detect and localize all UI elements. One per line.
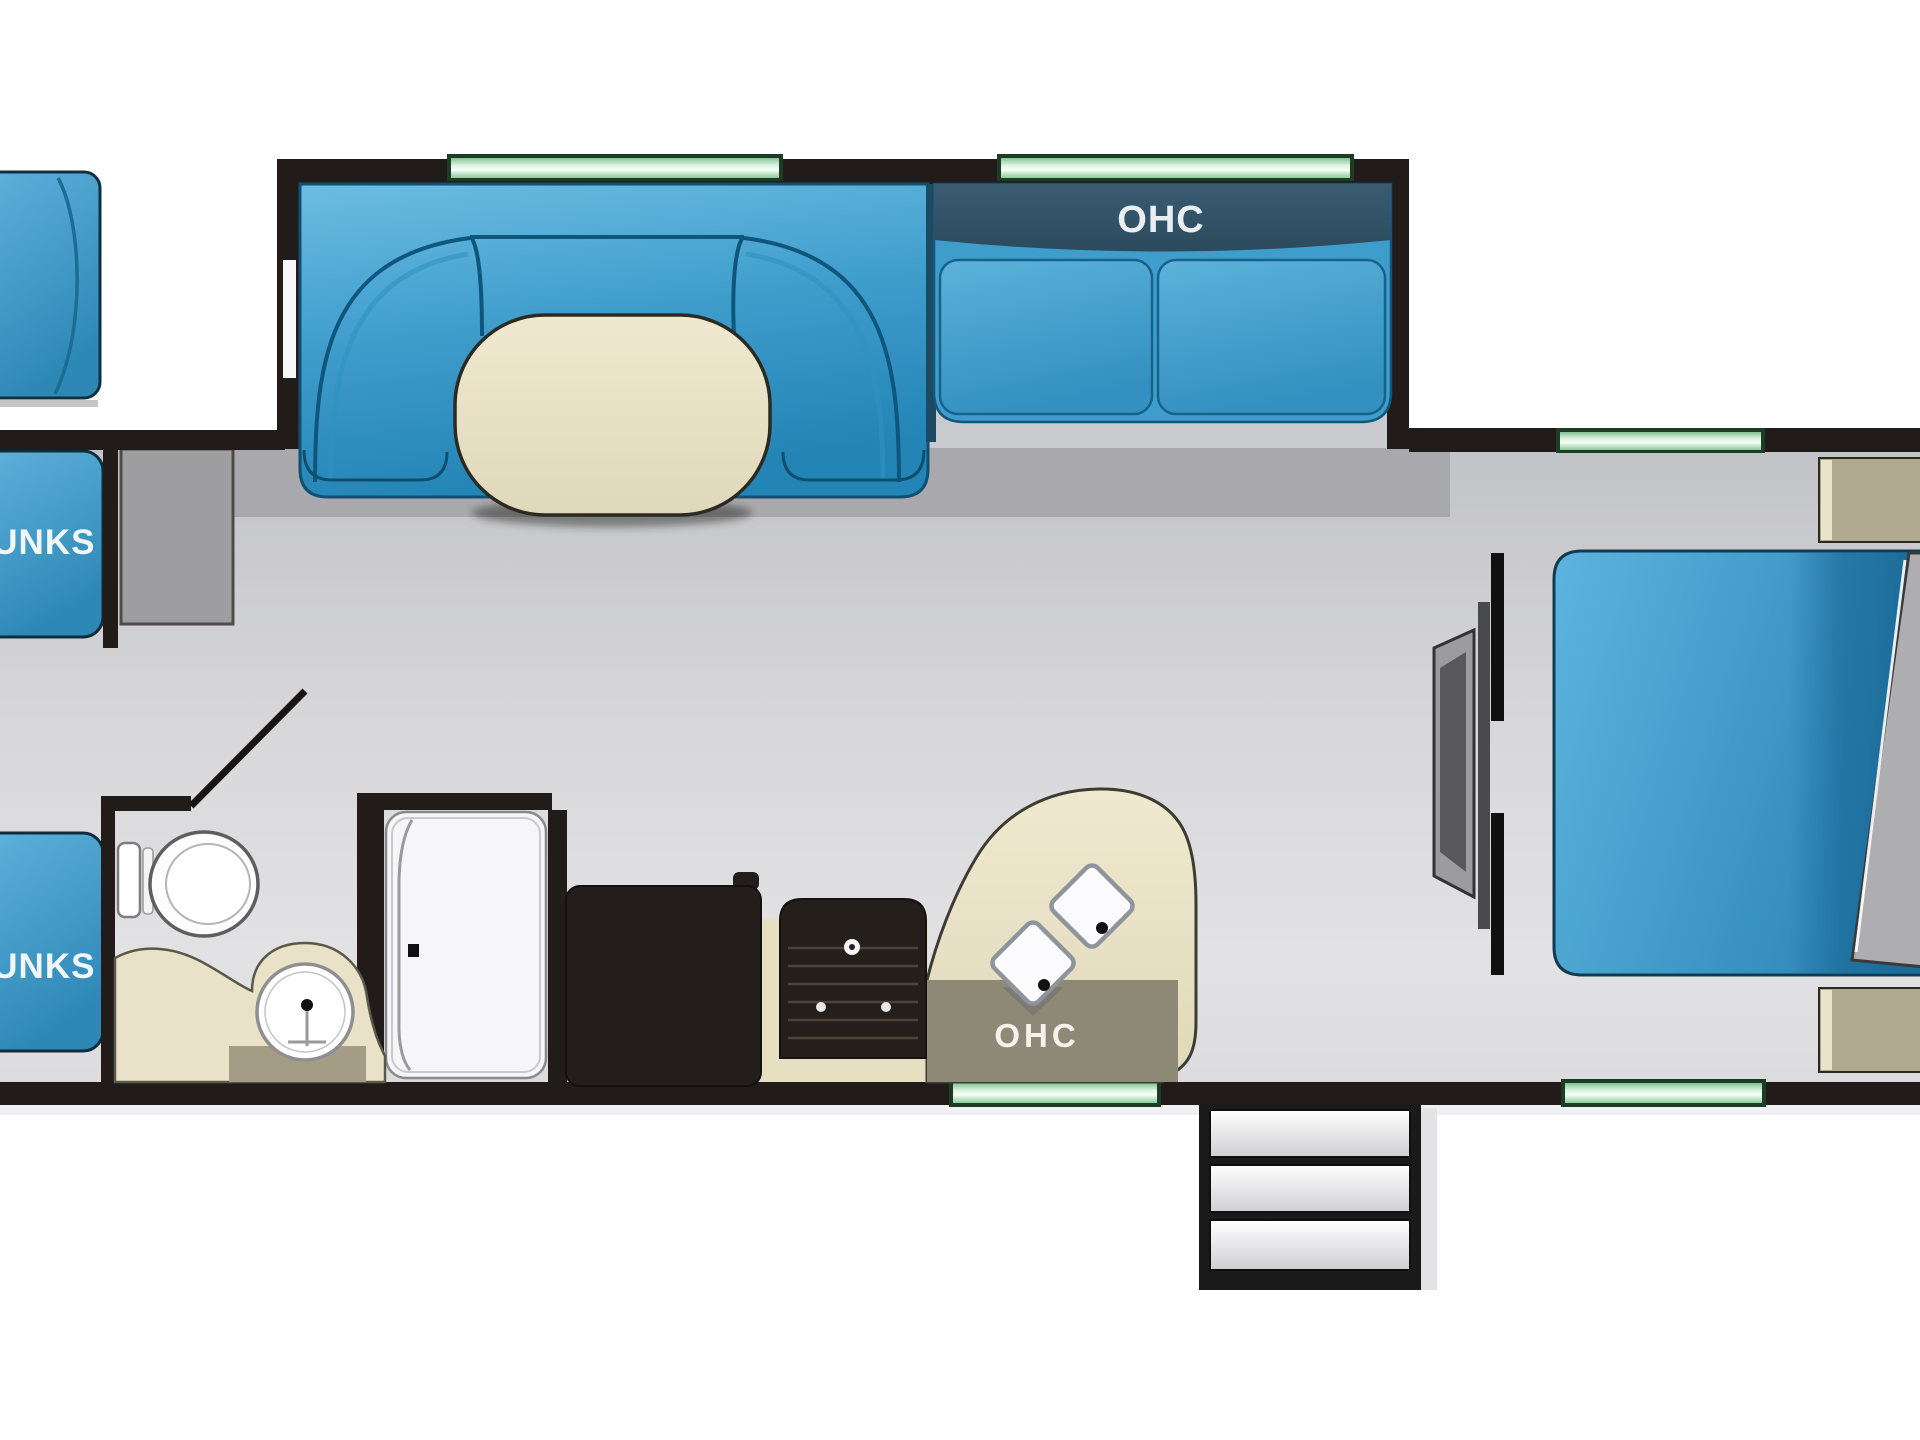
svg-text:OHC: OHC — [1117, 199, 1204, 241]
svg-text:BUNKS: BUNKS — [0, 947, 95, 986]
svg-text:OHC: OHC — [994, 1017, 1079, 1054]
svg-text:BUNKS: BUNKS — [0, 523, 95, 562]
